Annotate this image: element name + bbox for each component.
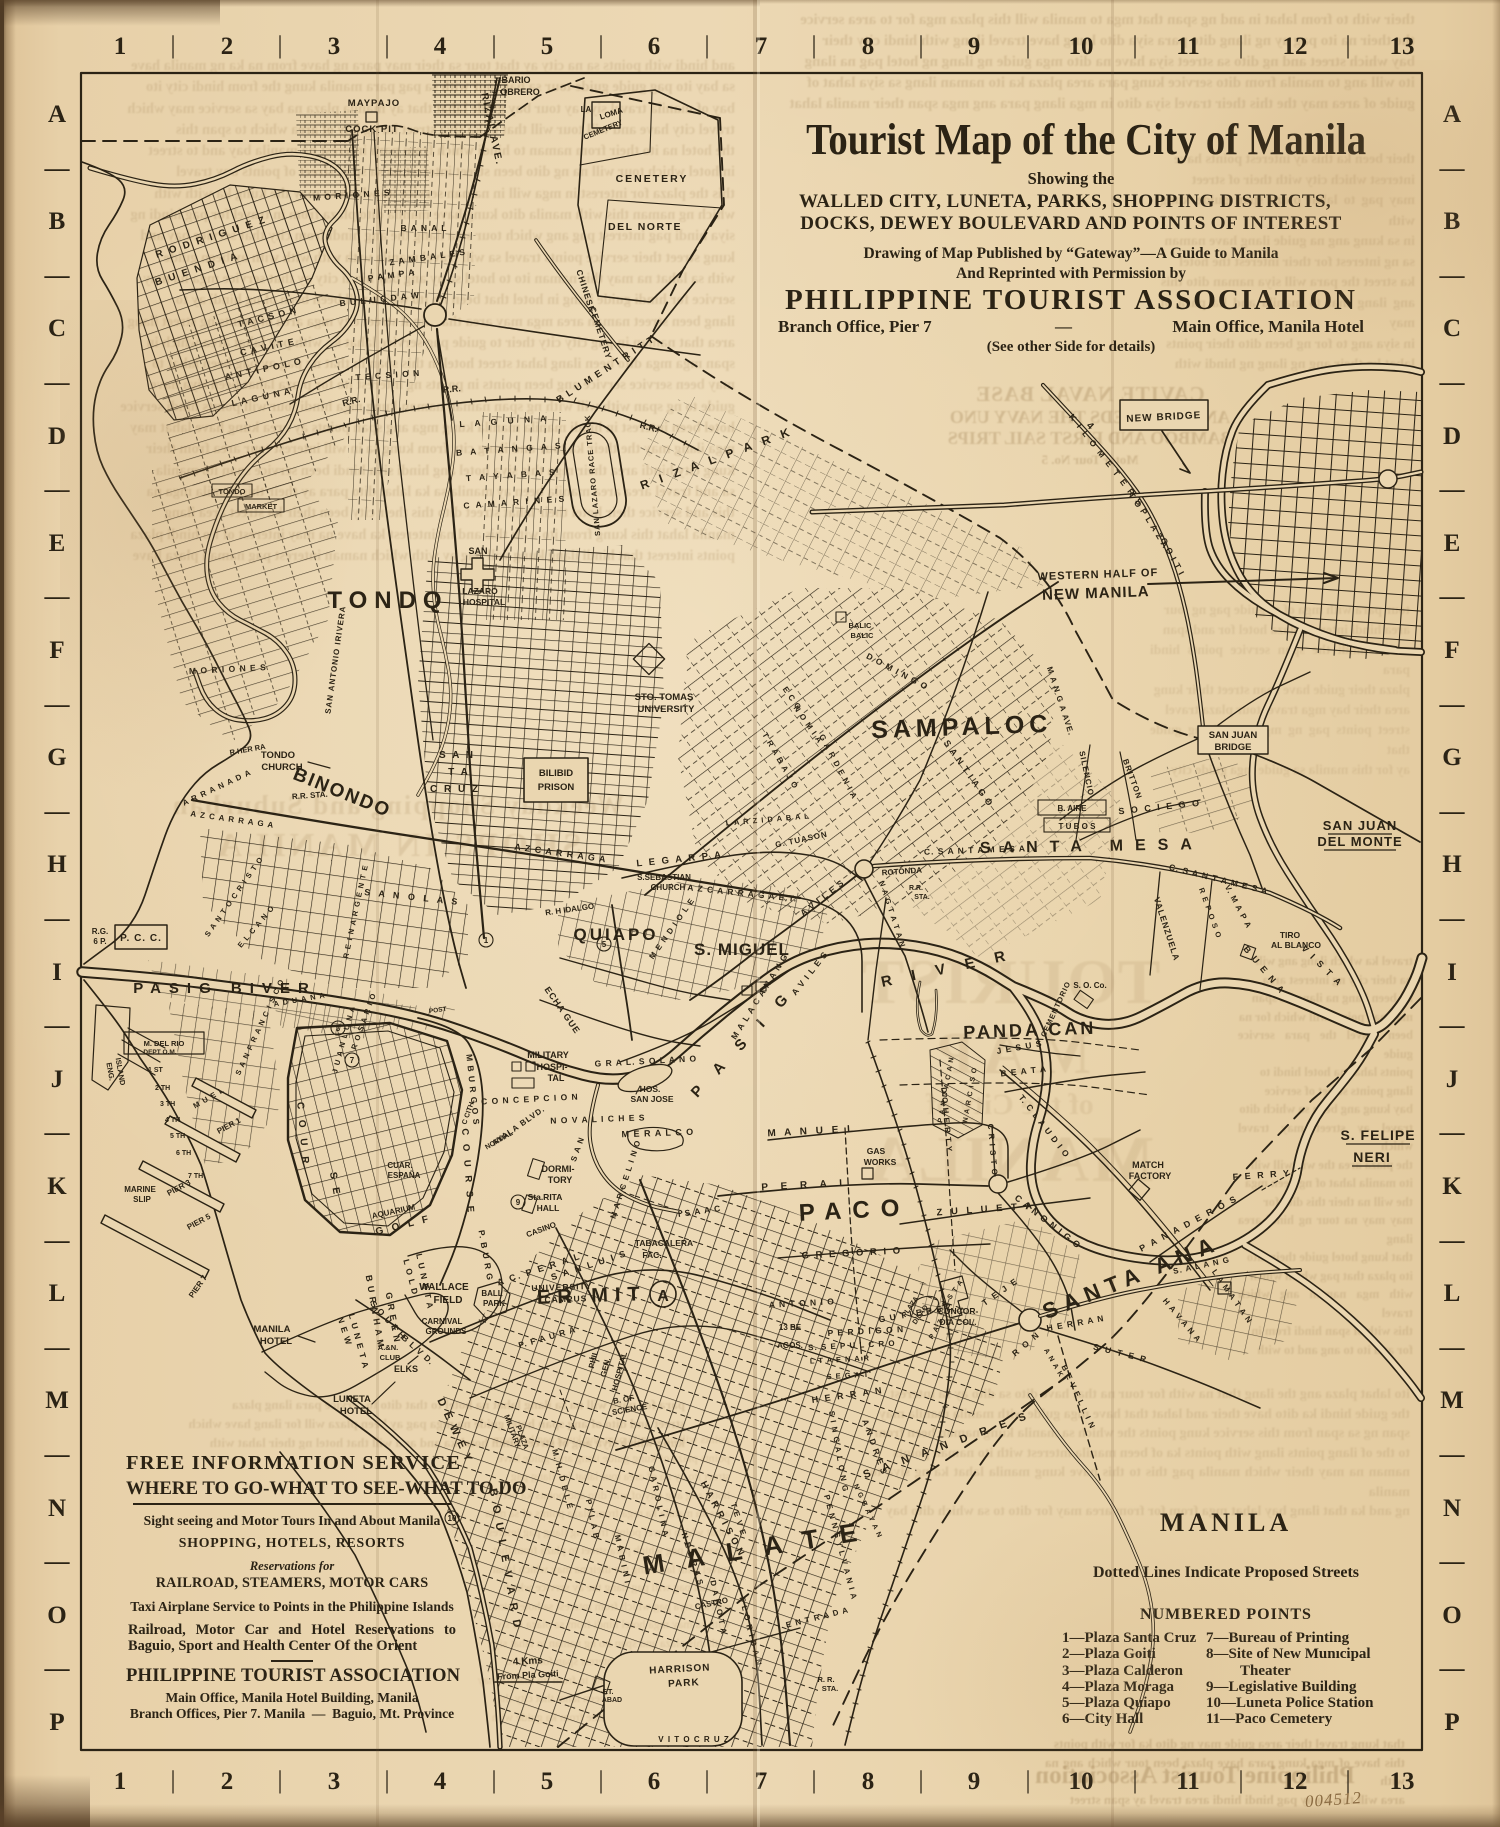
- svg-text:4: 4: [434, 33, 447, 60]
- svg-text:LUNETA: LUNETA: [333, 1394, 371, 1405]
- svg-text:GROUNDS: GROUNDS: [426, 1327, 468, 1336]
- svg-text:M. DEL RIO: M. DEL RIO: [144, 1039, 185, 1048]
- svg-text:V I T O C R U Z: V I T O C R U Z: [658, 1735, 729, 1744]
- svg-text:BILIBID: BILIBID: [539, 768, 573, 779]
- svg-text:11: 11: [1176, 33, 1200, 60]
- svg-text:H: H: [47, 851, 67, 878]
- svg-text:CHURCH: CHURCH: [651, 883, 686, 892]
- svg-text:HOTEL: HOTEL: [260, 1336, 292, 1347]
- svg-text:S A N: S A N: [439, 750, 475, 761]
- svg-text:|: |: [811, 1767, 816, 1794]
- svg-text:C R U Z: C R U Z: [430, 784, 480, 795]
- svg-text:L: L: [1444, 1280, 1461, 1307]
- svg-text:B E A T A: B E A T A: [1000, 1064, 1048, 1079]
- svg-text:AL BLANCO: AL BLANCO: [1271, 940, 1321, 950]
- svg-text:WORKS: WORKS: [864, 1157, 897, 1167]
- svg-text:PACO: PACO: [798, 1194, 911, 1227]
- svg-text:SAN JOSE: SAN JOSE: [631, 1094, 674, 1104]
- svg-text:A: A: [48, 101, 66, 128]
- svg-text:HOSPITAL: HOSPITAL: [463, 597, 505, 607]
- svg-text:B: B: [49, 208, 66, 235]
- svg-text:BRIDGE: BRIDGE: [1215, 742, 1252, 753]
- svg-text:TORY: TORY: [548, 1175, 573, 1185]
- svg-text:OBRERO: OBRERO: [500, 87, 540, 97]
- svg-text:ECHA GUE: ECHA GUE: [543, 985, 583, 1036]
- svg-text:|: |: [1238, 32, 1243, 59]
- svg-text:A N A K: A N A K: [1042, 1348, 1064, 1379]
- svg-text:PIER 5: PIER 5: [186, 1212, 213, 1232]
- svg-text:S. FELIPE: S. FELIPE: [1340, 1127, 1415, 1143]
- svg-text:|: |: [704, 1767, 709, 1794]
- svg-text:J: J: [1446, 1066, 1459, 1093]
- svg-text:|: |: [491, 1767, 496, 1794]
- svg-text:|: |: [704, 32, 709, 59]
- svg-text:COCK PIT: COCK PIT: [345, 124, 398, 135]
- svg-text:2: 2: [221, 1768, 234, 1795]
- svg-text:R.R.: R.R.: [442, 383, 461, 395]
- svg-text:GAS: GAS: [867, 1146, 886, 1156]
- svg-text:—: —: [44, 1441, 71, 1468]
- svg-text:|: |: [1132, 32, 1137, 59]
- svg-text:N O V A L I C H E S: N O V A L I C H E S: [550, 1112, 645, 1125]
- svg-text:CAMPUS: CAMPUS: [544, 1293, 587, 1304]
- svg-text:—: —: [44, 1012, 71, 1039]
- svg-text:|: |: [384, 32, 389, 59]
- svg-text:—: —: [44, 1334, 71, 1361]
- svg-text:STA.: STA.: [822, 1684, 839, 1693]
- svg-text:P E R A L: P E R A L: [761, 1178, 851, 1194]
- svg-text:STO. TOMAS: STO. TOMAS: [635, 692, 694, 703]
- svg-text:P: P: [49, 1709, 64, 1736]
- svg-text:—: —: [1439, 798, 1466, 825]
- svg-text:|: |: [811, 32, 816, 59]
- svg-text:HALL: HALL: [537, 1203, 560, 1213]
- svg-text:—: —: [1439, 1119, 1466, 1146]
- svg-text:O: O: [47, 1602, 66, 1629]
- svg-text:|: |: [170, 32, 175, 59]
- svg-text:5: 5: [541, 1768, 554, 1795]
- svg-text:P. B U R G: P. B U R G: [477, 1229, 496, 1281]
- svg-text:SAN: SAN: [468, 546, 487, 556]
- svg-text:CLUB: CLUB: [380, 1353, 401, 1362]
- svg-text:S. O. Co.: S. O. Co.: [1073, 981, 1106, 990]
- svg-text:VALENZUELA: VALENZUELA: [1152, 896, 1182, 962]
- svg-text:NEW MANILA: NEW MANILA: [1042, 583, 1150, 604]
- svg-text:C O U R S E: C O U R S E: [459, 1128, 476, 1215]
- svg-text:J: J: [51, 1066, 64, 1093]
- svg-text:F E R R Y: F E R R Y: [1232, 1168, 1291, 1182]
- svg-text:NERI: NERI: [1353, 1149, 1390, 1165]
- svg-text:C R I S T O: C R I S T O: [986, 1123, 1000, 1176]
- svg-text:9: 9: [968, 33, 981, 60]
- svg-text:|: |: [170, 1767, 175, 1794]
- svg-text:M A N U E L: M A N U E L: [767, 1124, 856, 1140]
- svg-text:BALIC: BALIC: [849, 621, 872, 630]
- svg-text:—: —: [1439, 1227, 1466, 1254]
- svg-text:—: —: [1439, 1655, 1466, 1682]
- svg-text:—: —: [44, 905, 71, 932]
- svg-text:K: K: [47, 1173, 67, 1200]
- svg-text:I: I: [1447, 959, 1457, 986]
- svg-text:STA.: STA.: [914, 894, 929, 901]
- svg-text:MANILA: MANILA: [254, 1324, 291, 1335]
- svg-text:S U T E R: S U T E R: [1092, 1341, 1149, 1364]
- svg-text:8: 8: [862, 33, 875, 60]
- svg-text:R.R.: R.R.: [909, 885, 923, 892]
- svg-text:4: 4: [434, 1768, 447, 1795]
- svg-text:1 ST: 1 ST: [148, 1067, 164, 1074]
- svg-text:ESPAÑA: ESPAÑA: [388, 1171, 421, 1180]
- svg-text:UNIVERSITY: UNIVERSITY: [531, 1281, 592, 1293]
- svg-text:—: —: [44, 1655, 71, 1682]
- svg-text:R.R.: R.R.: [639, 420, 659, 434]
- svg-text:—: —: [44, 798, 71, 825]
- svg-text:FAC.: FAC.: [642, 1250, 661, 1260]
- svg-text:12: 12: [1283, 33, 1308, 60]
- svg-text:BALIC: BALIC: [851, 631, 874, 640]
- svg-text:FACTORY: FACTORY: [1129, 1171, 1172, 1181]
- svg-text:CUAR.: CUAR.: [387, 1161, 412, 1170]
- svg-text:R.G.: R.G.: [92, 927, 108, 936]
- svg-text:F.T.: F.T.: [603, 1689, 614, 1696]
- svg-text:TAL: TAL: [548, 1073, 565, 1083]
- svg-text:P: P: [1444, 1709, 1459, 1736]
- svg-text:—: —: [1439, 583, 1466, 610]
- svg-text:7 TH: 7 TH: [188, 1173, 203, 1180]
- svg-text:HOSPI-: HOSPI-: [536, 1062, 567, 1072]
- svg-text:K: K: [1442, 1173, 1462, 1200]
- svg-text:CASINO: CASINO: [525, 1220, 557, 1239]
- svg-text:—: —: [44, 1548, 71, 1575]
- svg-text:S.SEBASTIAN: S.SEBASTIAN: [637, 873, 691, 882]
- svg-text:L: L: [49, 1280, 66, 1307]
- svg-text:B E V E L L I N: B E V E L L I N: [1059, 1363, 1097, 1430]
- svg-text:DORMI-: DORMI-: [542, 1164, 575, 1174]
- svg-text:—: —: [44, 155, 71, 182]
- svg-text:6: 6: [648, 33, 661, 60]
- svg-text:—: —: [44, 1119, 71, 1146]
- svg-text:PANDA CAN: PANDA CAN: [963, 1018, 1097, 1043]
- svg-text:F: F: [1444, 637, 1459, 664]
- svg-text:—: —: [1439, 476, 1466, 503]
- svg-text:CEMETERY: CEMETERY: [588, 305, 614, 360]
- svg-text:4 TH: 4 TH: [165, 1117, 180, 1124]
- svg-text:2: 2: [221, 33, 234, 60]
- svg-text:A.&N.: A.&N.: [378, 1343, 398, 1352]
- svg-text:T U B O S: T U B O S: [1059, 822, 1097, 831]
- svg-text:N: N: [1443, 1495, 1461, 1522]
- svg-text:—: —: [1439, 905, 1466, 932]
- svg-text:—: —: [44, 1227, 71, 1254]
- svg-text:WESTERN HALF OF: WESTERN HALF OF: [1037, 567, 1158, 583]
- svg-text:—: —: [1439, 1012, 1466, 1039]
- svg-text:N: N: [48, 1495, 66, 1522]
- svg-text:C O N C E P C I O N: C O N C E P C I O N: [481, 1091, 579, 1106]
- svg-text:—: —: [1439, 1548, 1466, 1575]
- svg-text:UNIVERSITY: UNIVERSITY: [637, 704, 695, 715]
- svg-text:6 TH: 6 TH: [176, 1150, 191, 1157]
- svg-text:Z U L U E T A: Z U L U E T A: [936, 1201, 1035, 1219]
- svg-text:6: 6: [648, 1768, 661, 1795]
- svg-text:9: 9: [516, 1198, 521, 1207]
- svg-text:13: 13: [1390, 1768, 1415, 1795]
- svg-text:—: —: [1439, 1334, 1466, 1361]
- svg-text:Sta.RITA: Sta.RITA: [528, 1192, 563, 1202]
- svg-text:DEL NORTE: DEL NORTE: [608, 221, 682, 233]
- svg-text:ABAD: ABAD: [602, 1697, 622, 1704]
- svg-text:QUIAPO: QUIAPO: [573, 925, 658, 944]
- svg-text:HOS.: HOS.: [640, 1084, 661, 1094]
- svg-text:BARIO: BARIO: [502, 75, 531, 85]
- svg-text:13: 13: [1390, 33, 1415, 60]
- svg-text:|: |: [1025, 32, 1030, 59]
- svg-text:BRITTON: BRITTON: [1121, 758, 1144, 801]
- svg-text:ELKS: ELKS: [394, 1364, 418, 1374]
- svg-text:S. MIGUEL: S. MIGUEL: [694, 940, 790, 959]
- svg-text:DIA COL.: DIA COL.: [940, 1317, 977, 1327]
- svg-text:4 Kms: 4 Kms: [513, 1655, 544, 1668]
- svg-text:|: |: [598, 1767, 603, 1794]
- svg-text:—: —: [1439, 369, 1466, 396]
- svg-text:|: |: [918, 32, 923, 59]
- svg-text:SLIP: SLIP: [133, 1195, 151, 1204]
- svg-text:LAZARO: LAZARO: [462, 586, 498, 596]
- svg-text:10: 10: [1069, 33, 1094, 60]
- svg-text:TIRO: TIRO: [1280, 930, 1301, 940]
- svg-text:MAYPAJO: MAYPAJO: [348, 98, 400, 109]
- svg-text:|: |: [491, 32, 496, 59]
- svg-text:5: 5: [541, 33, 554, 60]
- svg-text:6 P.: 6 P.: [93, 937, 106, 946]
- svg-text:CEMETERY: CEMETERY: [582, 118, 624, 142]
- svg-text:HOTEL: HOTEL: [340, 1406, 372, 1417]
- svg-text:R. R.: R. R.: [817, 1675, 834, 1684]
- svg-text:MARINE: MARINE: [124, 1185, 156, 1194]
- svg-text:PIER 7: PIER 7: [187, 1273, 209, 1299]
- svg-text:DEL MONTE: DEL MONTE: [1317, 834, 1402, 849]
- svg-text:1: 1: [114, 1768, 127, 1795]
- svg-text:M: M: [1440, 1387, 1464, 1414]
- svg-text:CARNIVAL: CARNIVAL: [422, 1317, 463, 1326]
- svg-text:|: |: [277, 1767, 282, 1794]
- svg-text:LA: LA: [581, 105, 592, 114]
- svg-text:13 BE: 13 BE: [779, 1323, 802, 1332]
- svg-text:3: 3: [328, 1768, 341, 1795]
- svg-text:5: 5: [602, 940, 607, 949]
- svg-text:|: |: [598, 32, 603, 59]
- svg-text:TABACALERA: TABACALERA: [635, 1238, 693, 1248]
- svg-text:7: 7: [350, 1056, 355, 1065]
- svg-text:—: —: [44, 262, 71, 289]
- svg-text:S A N: S A N: [569, 1136, 586, 1163]
- svg-text:H: H: [1442, 851, 1462, 878]
- svg-text:SAN LAZARO RACE TRACK: SAN LAZARO RACE TRACK: [583, 414, 603, 536]
- svg-text:B A N A L: B A N A L: [401, 223, 448, 233]
- svg-text:DEPT O.M.: DEPT O.M.: [143, 1049, 176, 1056]
- svg-text:D: D: [1443, 423, 1461, 450]
- svg-text:3 TH: 3 TH: [160, 1101, 175, 1108]
- svg-text:E: E: [1444, 530, 1461, 557]
- svg-text:MATCH: MATCH: [1132, 1160, 1164, 1170]
- svg-text:PRISON: PRISON: [538, 782, 575, 793]
- svg-text:B. AIRE: B. AIRE: [1057, 804, 1087, 813]
- svg-text:SAN JUAN: SAN JUAN: [1209, 730, 1258, 741]
- svg-text:1: 1: [114, 33, 127, 60]
- svg-text:CENETERY: CENETERY: [616, 173, 689, 185]
- svg-text:MILITARY: MILITARY: [527, 1050, 569, 1060]
- svg-text:3: 3: [328, 33, 341, 60]
- svg-text:A: A: [657, 1288, 669, 1305]
- svg-text:PASIG BIVER: PASIG BIVER: [133, 980, 317, 997]
- svg-text:ENG.: ENG.: [104, 1062, 116, 1082]
- svg-text:M E R A L C O: M E R A L C O: [621, 1127, 694, 1140]
- svg-text:P. C. C.: P. C. C.: [120, 933, 162, 944]
- svg-text:2 TH: 2 TH: [155, 1085, 170, 1092]
- svg-text:FIELD: FIELD: [434, 1295, 463, 1306]
- svg-text:SAN JUAN: SAN JUAN: [1323, 818, 1397, 833]
- svg-text:3: 3: [336, 1024, 341, 1033]
- svg-text:AGOS.: AGOS.: [777, 1341, 803, 1350]
- svg-text:G: G: [1442, 744, 1461, 771]
- svg-text:|: |: [277, 32, 282, 59]
- svg-text:M: M: [45, 1387, 69, 1414]
- svg-text:PARK: PARK: [668, 1677, 700, 1690]
- svg-text:I: I: [52, 959, 62, 986]
- svg-text:5 TH: 5 TH: [170, 1133, 185, 1140]
- svg-text:PARK: PARK: [483, 1299, 505, 1308]
- svg-text:|: |: [384, 1767, 389, 1794]
- svg-text:—: —: [1439, 1441, 1466, 1468]
- svg-text:O: O: [1442, 1602, 1461, 1629]
- svg-text:T A: T A: [448, 767, 470, 778]
- svg-text:1: 1: [484, 936, 489, 945]
- svg-text:—: —: [1439, 691, 1466, 718]
- svg-text:8: 8: [862, 1768, 875, 1795]
- svg-text:BALL: BALL: [481, 1289, 502, 1298]
- svg-text:|: |: [1345, 32, 1350, 59]
